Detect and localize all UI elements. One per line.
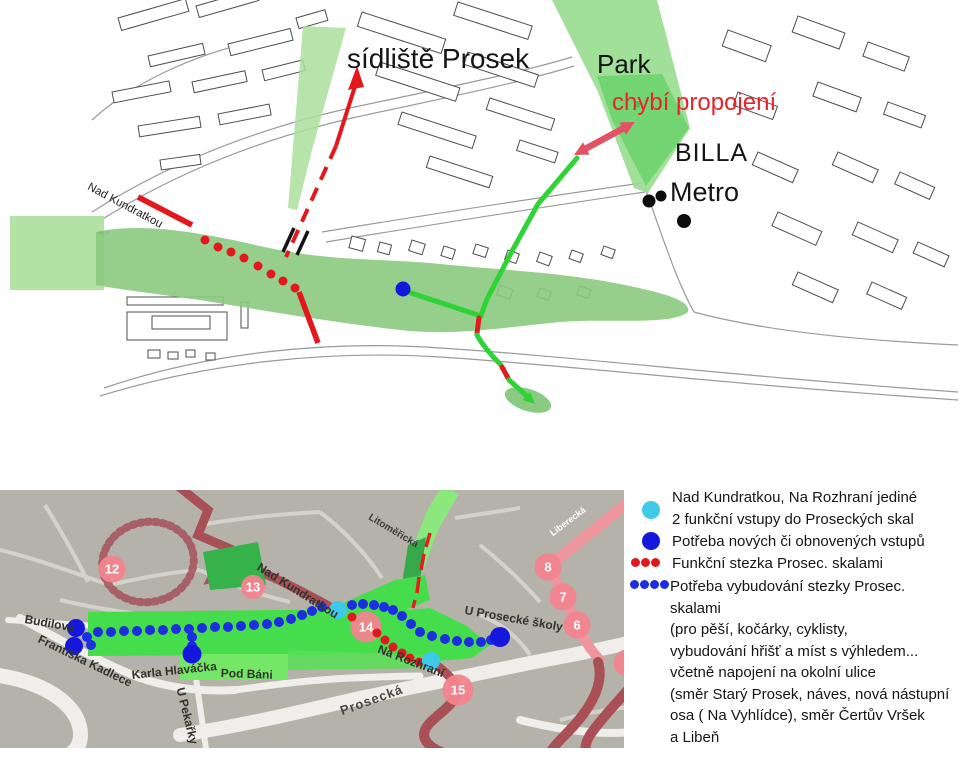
bottom-street-map: 121314158765 Budilova Františka Kadlece … [0,490,624,748]
label-billa: BILLA [675,140,748,166]
street-label-pod-bani: Pod Báni [221,666,273,682]
green-wedge-north [288,26,346,210]
label-sidliste-prosek: sídliště Prosek [347,44,529,73]
transit-stop-number-15: 15 [451,683,465,698]
transit-stop-number-13: 13 [246,580,260,595]
label-park: Park [597,51,650,78]
legend-red-dotted-icon [631,558,660,567]
green-band-west [10,216,104,290]
legend-blue-dot-icon [642,532,660,550]
legend-item-needed-entries: Potřeba nových či obnovených vstupů [672,531,925,553]
transit-stop-number-5: 5 [623,656,624,671]
top-map-plan: sídliště Prosek Park chybí propojení BIL… [0,0,960,472]
entry-point-blue-dot-top [396,282,411,297]
legend-blue-dotted-icon [630,580,669,589]
label-metro: Metro [670,178,739,206]
transit-stop-number-6: 6 [573,618,580,633]
transit-stop-number-12: 12 [105,562,119,577]
presentation-slide: sídliště Prosek Park chybí propojení BIL… [0,0,960,765]
transit-stop-number-7: 7 [559,590,566,605]
label-missing-connection: chybí propojení [612,90,776,115]
red-arrow-shaft [336,80,357,146]
legend-item-functional-trail: Funkční stezka Prosec. skalami [672,553,883,575]
transit-stop-number-8: 8 [544,560,551,575]
legend-cyan-dot-icon [642,501,660,519]
transit-stop-number-14: 14 [359,620,374,635]
legend-item-planned-trail: Potřeba vybudování stezky Prosec. skalam… [670,576,960,748]
legend-item-functional-entries: Nad Kundratkou, Na Rozhraní jediné 2 fun… [672,487,917,530]
